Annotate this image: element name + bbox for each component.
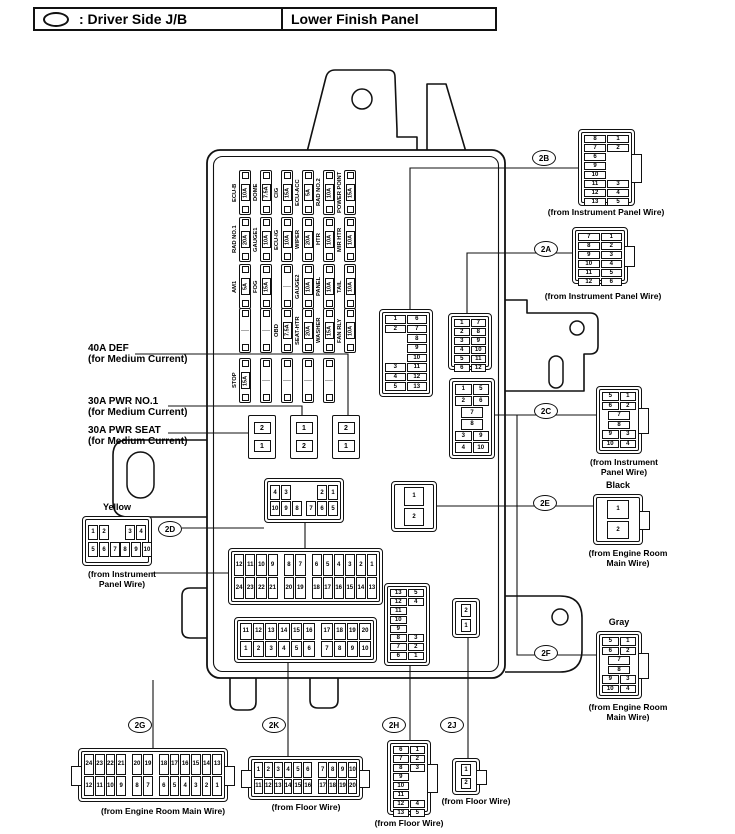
fuse-rating-label: 15A	[346, 184, 355, 201]
pin-cell: 3	[281, 485, 291, 500]
fuse-rating-label: 10A	[325, 278, 334, 295]
connector-frame: 12	[394, 484, 434, 529]
pin-cell: 2	[408, 643, 425, 651]
fuse-body: 7.5A	[260, 170, 272, 215]
pin-cell: 8	[608, 666, 629, 675]
fuse-name-label: MIR HTR	[336, 217, 344, 262]
pin-cell: 17	[170, 754, 180, 775]
fuse-name-label: RAD NO.2	[315, 170, 323, 215]
fuse-terminal	[242, 360, 249, 367]
top-bracket	[307, 70, 417, 152]
fuse-terminal	[326, 206, 333, 213]
ref-2E: 2E	[533, 495, 557, 511]
fuse-name-label: GAUGE2	[294, 264, 302, 309]
bracket-slot	[127, 452, 154, 498]
pin-group: 201987	[132, 754, 153, 796]
fuse-rating-label: 10A	[325, 231, 334, 248]
fuse-stop: STOP15A	[231, 358, 252, 403]
fuse-body: 15A	[344, 170, 356, 215]
pin-cell: 8	[334, 641, 346, 658]
fuse-am1: AM15A	[231, 264, 252, 309]
connector-frame: 21	[455, 601, 477, 635]
label-line: (for Medium Current)	[88, 436, 187, 447]
pin-cell: 6	[317, 501, 327, 516]
pin-cell: 18	[328, 779, 337, 795]
fuse-terminal	[284, 360, 291, 367]
fuse-terminal	[347, 266, 354, 273]
pin-cell: 3	[410, 764, 426, 772]
fuse-terminal	[284, 300, 291, 307]
fuse-dome: DOME7.5A	[252, 170, 273, 215]
pin-cell: 10	[584, 171, 606, 179]
pin-cell: 17	[318, 779, 327, 795]
fuse-body: 10A	[260, 217, 272, 262]
fuse-name-label	[273, 264, 281, 309]
pin-group: 34	[125, 525, 146, 540]
pin-cell: 12	[393, 800, 409, 808]
fuse-empty-slot	[262, 330, 270, 331]
pin-cell: 23	[95, 754, 105, 775]
pin-cell: 1	[212, 776, 222, 797]
fuse-terminal	[242, 253, 249, 260]
fuse-rad-no-1: RAD NO.120A	[231, 217, 252, 262]
pin-cell: 8	[393, 764, 409, 772]
fuse-tail: TAIL10A	[336, 264, 357, 309]
pin-cell: 1	[454, 319, 470, 327]
pin-cell: 5	[88, 542, 98, 557]
fuse-ecu-acc: ECU-ACC5A	[294, 170, 315, 215]
fuse-terminal	[326, 394, 333, 401]
fuse-terminal	[242, 310, 249, 317]
fuse-body: 10A	[281, 217, 293, 262]
pin-cell: 6	[303, 762, 312, 778]
pin-cell: 6	[312, 554, 322, 576]
fuse-terminal	[326, 310, 333, 317]
fuse-terminal	[242, 206, 249, 213]
pin-cell: 1	[88, 525, 98, 540]
connector-frame: 51627893104	[599, 389, 639, 451]
medium-current-cell: 1	[338, 440, 355, 452]
fuse-rating-label: 15A	[262, 278, 271, 295]
pin-cell: 9	[390, 625, 407, 633]
fuse-name-label: CIG	[273, 170, 281, 215]
connector-caption: (from Instrument Panel Wire)	[578, 457, 670, 477]
pin-group: 242322211211109	[84, 754, 126, 796]
pin-cell: 1	[240, 641, 252, 658]
pin-cell: 13	[584, 198, 606, 206]
pin-cell: 2	[404, 508, 424, 527]
junction-block-oval-icon	[43, 12, 69, 27]
connector-ext2e: 12	[593, 494, 643, 545]
pin-cell: 20	[348, 779, 357, 795]
pin-cell: 17	[323, 577, 333, 599]
pin-cell: 4	[620, 685, 637, 694]
pin-cell: 3	[620, 675, 637, 684]
fuse-body: 10A	[302, 264, 314, 309]
fuse-terminal	[284, 266, 291, 273]
connector-ext2f: 51627893104	[596, 631, 642, 699]
fuse-name-label: HTR	[315, 217, 323, 262]
fuse-body: 10A	[323, 217, 335, 262]
pin-cell: 1	[455, 384, 472, 395]
fuse-terminal	[347, 344, 354, 351]
pin-cell: 7	[407, 325, 428, 334]
medium-current-cell: 2	[254, 422, 271, 434]
connector-color-label: Yellow	[82, 502, 152, 512]
connector-ext2a: 718293104115126	[572, 227, 628, 284]
fuse-rating-label: 5A	[304, 184, 313, 201]
pin-cell: 12	[264, 779, 273, 795]
pin-cell: 7	[393, 755, 409, 763]
fuse-name-label: RAD NO.1	[231, 217, 239, 262]
pin-cell: 2	[356, 554, 366, 576]
ref-2D: 2D	[158, 521, 182, 537]
connector-frame: 13512411109837261	[387, 586, 427, 663]
medium-current-cell: 2	[338, 422, 355, 434]
fuse-body: 20A	[239, 217, 251, 262]
fuse-terminal	[305, 253, 312, 260]
connector-ext2h: 61728391011124135	[387, 740, 431, 815]
pin-cell: 9	[268, 554, 278, 576]
pin-cell: 5	[454, 355, 470, 363]
pin-cell: 2	[455, 396, 472, 407]
pin-cell: 13	[390, 589, 407, 597]
fuse-terminal	[305, 300, 312, 307]
pin-cell: 11	[390, 607, 407, 615]
pin-cell: 1	[385, 315, 406, 324]
left-tab	[182, 588, 207, 638]
connector-jb2b: 16278910311412513	[379, 309, 433, 397]
pin-cell: 18	[159, 754, 169, 775]
fuse-blank	[273, 264, 294, 309]
pin-group: 872019	[284, 554, 306, 599]
connector-caption: (from Floor Wire)	[364, 818, 454, 828]
fuse-terminal	[305, 394, 312, 401]
pin-cell: 13	[367, 577, 377, 599]
fuse-terminal	[263, 219, 270, 226]
pin-cell: 6	[393, 746, 409, 754]
pin-cell: 4	[410, 800, 426, 808]
fuse-name-label: DOME	[252, 170, 260, 215]
pin-cell: 3	[620, 430, 637, 439]
fuse-body	[260, 358, 272, 403]
fuse-terminal	[326, 253, 333, 260]
pin-cell: 1	[461, 764, 470, 776]
fuse-body: 15A	[281, 170, 293, 215]
fuse-rating-label: 10A	[283, 231, 292, 248]
pin-cell: 10	[602, 685, 619, 694]
pin-cell: 6	[159, 776, 169, 797]
pin-cell: 10	[348, 762, 357, 778]
pin-cell: 24	[234, 577, 244, 599]
fuse-body: 20A	[302, 308, 314, 353]
medium-current-cell: 2	[296, 440, 313, 452]
pin-cell: 2	[99, 525, 109, 540]
pin-cell: 8	[407, 334, 428, 343]
pin-cell: 4	[278, 641, 290, 658]
fuse-name-label: AM1	[231, 264, 239, 309]
pin-cell: 4	[270, 485, 280, 500]
pin-cell: 3	[454, 337, 470, 345]
pin-cell: 11	[245, 554, 255, 576]
connector-caption: (from Floor Wire)	[258, 802, 354, 812]
connector-frame: 242322211211109201987181716151413654321	[81, 751, 225, 799]
fuse-body: 10A	[344, 217, 356, 262]
pin-cell: 9	[602, 675, 619, 684]
pin-row: 1098765	[270, 501, 338, 516]
fuse-rating-label: 5A	[241, 278, 250, 295]
fuse-name-label: OBD	[273, 308, 281, 353]
fuse-name-label: FOG	[252, 264, 260, 309]
fuse-name-label	[231, 308, 239, 353]
fuse-terminal	[263, 300, 270, 307]
pin-cell: 2	[317, 485, 327, 500]
pin-cell: 2	[454, 328, 470, 336]
pin-cell: 9	[116, 776, 126, 797]
fuse-fog: FOG15A	[252, 264, 273, 309]
fuse-name-label: GAUGE1	[252, 217, 260, 262]
fuse-gauge1: GAUGE110A	[252, 217, 273, 262]
pin-cell: 11	[578, 269, 600, 277]
pin-cell: 22	[256, 577, 266, 599]
pin-cell: 20	[359, 623, 371, 640]
fuse-name-label: PANEL	[315, 264, 323, 309]
pin-cell: 11	[393, 791, 409, 799]
fuse-rating-label: 10A	[346, 278, 355, 295]
pin-cell: 7	[608, 411, 629, 420]
pin-group: 12	[88, 525, 109, 540]
connector-jb2c: 15267839410	[449, 378, 495, 459]
pin-cell: 12	[234, 554, 244, 576]
pin-cell: 1	[254, 762, 263, 778]
pin-group: 1098	[270, 501, 302, 516]
fuse-terminal	[284, 253, 291, 260]
fuse-terminal	[242, 344, 249, 351]
medium-current-cell: 1	[296, 422, 313, 434]
ref-2J: 2J	[440, 717, 464, 733]
pin-cell: 7	[390, 643, 407, 651]
fuse-ecu-ig: ECU-IG10A	[273, 217, 294, 262]
fuse-rating-label: 10A	[304, 278, 313, 295]
connector-frame: 12345678910	[85, 519, 149, 563]
ref-2H: 2H	[382, 717, 406, 733]
fuse-terminal	[263, 172, 270, 179]
connector-caption: (from Instrument Panel Wire)	[536, 207, 676, 217]
fuse-terminal	[284, 206, 291, 213]
pin-cell: 20	[284, 577, 294, 599]
legend-label: : Driver Side J/B	[79, 11, 187, 27]
pin-cell: 8	[292, 501, 302, 516]
fuse-name-label	[315, 358, 323, 403]
pin-cell: 10	[602, 440, 619, 449]
connector-caption: (from Instrument Panel Wire)	[533, 291, 673, 301]
fuse-rating-label: 15A	[283, 184, 292, 201]
pin-cell: 13	[393, 809, 409, 817]
connector-jb2k: 1112131415161234561718192078910	[234, 617, 377, 663]
fuse-body: 10A	[239, 170, 251, 215]
fuse-body: 15A	[260, 264, 272, 309]
pin-cell: 5	[607, 198, 629, 206]
fuse-terminal	[284, 172, 291, 179]
fuse-row: ECU-B10ADOME7.5ACIG15AECU-ACC5ARAD NO.21…	[231, 170, 357, 215]
label-line: (for Medium Current)	[88, 407, 187, 418]
fuse-terminal	[263, 206, 270, 213]
fuse-body	[239, 308, 251, 353]
ref-2G: 2G	[128, 717, 152, 733]
pin-cell: 9	[471, 337, 487, 345]
pin-cell: 11	[407, 363, 428, 372]
pin-cell: 21	[116, 754, 126, 775]
pin-cell: 5	[170, 776, 180, 797]
fuse-body	[302, 358, 314, 403]
fuse-name-label: ECU-IG	[273, 217, 281, 262]
pin-cell: 7	[110, 542, 120, 557]
fuse-terminal	[284, 394, 291, 401]
fuse-empty-slot	[283, 286, 291, 287]
fuse-terminal	[347, 253, 354, 260]
fuse-terminal	[305, 266, 312, 273]
fuse-body	[281, 264, 293, 309]
bracket-hole	[552, 609, 568, 625]
pin-cell: 1	[607, 500, 629, 519]
connector-caption: (from Engine Room Main Wire)	[576, 702, 680, 722]
pin-cell: 10	[390, 616, 407, 624]
pin-cell: 3	[601, 251, 623, 259]
pin-cell: 3	[274, 762, 283, 778]
pin-cell: 11	[584, 180, 606, 188]
pin-cell: 19	[143, 754, 153, 775]
connector-color-label: Gray	[596, 617, 642, 627]
pin-cell: 4	[601, 260, 623, 268]
fuse-terminal	[284, 219, 291, 226]
pin-cell: 11	[254, 779, 263, 795]
pin-group: 8910	[120, 542, 152, 557]
pin-cell: 2	[202, 776, 212, 797]
connector-frame: 81726910113124135	[581, 132, 632, 203]
fuse-name-label: WIPER	[294, 217, 302, 262]
pin-cell: 10	[106, 776, 116, 797]
pin-cell: 5	[328, 501, 338, 516]
pin-cell: 6	[390, 652, 407, 660]
pin-cell: 7	[306, 501, 316, 516]
fuse-row: AM15AFOG15AGAUGE210APANEL10ATAIL10A	[231, 264, 357, 309]
fuse-terminal	[242, 219, 249, 226]
pin-cell: 1	[461, 619, 470, 632]
pin-cell: 10	[471, 346, 487, 354]
fuse-empty-slot	[283, 380, 291, 381]
fuse-terminal	[263, 344, 270, 351]
connector-jb2g: 121110924232221872019654321181716151413	[228, 548, 383, 605]
pin-cell: 16	[303, 623, 315, 640]
pin-row: 5678910	[88, 542, 146, 557]
pin-cell: 19	[338, 779, 347, 795]
pin-cell: 1	[328, 485, 338, 500]
pin-cell: 14	[278, 623, 290, 640]
fuse-rating-label: 20A	[304, 322, 313, 339]
fuse-power-point: POWER POINT15A	[336, 170, 357, 215]
pin-group: 654321181716151413	[312, 554, 378, 599]
pin-cell: 10	[359, 641, 371, 658]
connector-ext2j: 12	[452, 758, 480, 795]
connector-ext2k: 1234561112131415167891017181920	[248, 756, 363, 800]
fuse-terminal	[347, 206, 354, 213]
fuse-cig: CIG15A	[273, 170, 294, 215]
pin-cell: 9	[393, 773, 409, 781]
pin-cell: 7	[461, 407, 482, 418]
connector-ext2b: 81726910113124135	[578, 129, 635, 206]
fuse-body: 10A	[344, 308, 356, 353]
pin-cell: 16	[334, 577, 344, 599]
fuse-blank	[315, 358, 336, 403]
pin-cell: 14	[202, 754, 212, 775]
pin-cell: 23	[245, 577, 255, 599]
fuse-terminal	[347, 219, 354, 226]
pin-cell: 2	[385, 325, 406, 334]
fuse-name-label: FAN RLY	[336, 308, 344, 353]
pin-cell: 12	[471, 364, 487, 372]
pin-group: 7891017181920	[318, 762, 357, 794]
pin-cell: 13	[212, 754, 222, 775]
pin-cell: 6	[601, 278, 623, 286]
pin-cell: 16	[180, 754, 190, 775]
pin-cell: 24	[84, 754, 94, 775]
pin-cell: 5	[410, 809, 426, 817]
fuse-body: 10A	[344, 264, 356, 309]
fuse-row: OBD7.5ASEAT-HTR20AWASHER15AFAN RLY10A	[231, 308, 357, 353]
fuse-terminal	[347, 310, 354, 317]
pin-cell: 2	[461, 604, 470, 617]
pin-cell: 9	[338, 762, 347, 778]
pin-cell: 6	[584, 153, 606, 161]
label-line: 40A DEF	[88, 343, 187, 354]
pin-cell: 15	[291, 623, 303, 640]
pin-group: 765	[306, 501, 338, 516]
fuse-terminal	[347, 300, 354, 307]
fuse-rad-no-2: RAD NO.210A	[315, 170, 336, 215]
fuse-rating-label: 10A	[325, 184, 334, 201]
fuse-rating-label: 10A	[241, 184, 250, 201]
fuse-blank	[252, 358, 273, 403]
fuse-terminal	[347, 172, 354, 179]
pin-cell: 13	[407, 382, 428, 391]
fuse-box-diagram: : Driver Side J/B Lower Finish Panel 40A…	[0, 0, 735, 834]
fuse-terminal	[263, 253, 270, 260]
pin-cell: 2	[253, 641, 265, 658]
pin-cell: 8	[608, 421, 629, 430]
fuse-terminal	[242, 394, 249, 401]
pin-cell: 1	[410, 746, 426, 754]
fuse-gauge2: GAUGE210A	[294, 264, 315, 309]
fuse-blank	[252, 308, 273, 353]
pin-cell: 10	[473, 442, 490, 453]
connector-caption: (from Floor Wire)	[430, 796, 522, 806]
pin-cell: 8	[471, 328, 487, 336]
fuse-name-label: ECU-ACC	[294, 170, 302, 215]
pin-cell: 11	[95, 776, 105, 797]
fuse-empty-slot	[262, 380, 270, 381]
fuse-name-label	[252, 308, 260, 353]
pin-cell: 4	[334, 554, 344, 576]
fuse-terminal	[305, 360, 312, 367]
label-line: 30A PWR SEAT	[88, 425, 187, 436]
fuse-body	[281, 358, 293, 403]
pin-cell: 12	[584, 189, 606, 197]
fuse-fan-rly: FAN RLY10A	[336, 308, 357, 353]
fuse-terminal	[263, 266, 270, 273]
fuse-terminal	[263, 394, 270, 401]
pin-cell: 1	[620, 637, 637, 646]
pin-cell: 8	[584, 135, 606, 143]
